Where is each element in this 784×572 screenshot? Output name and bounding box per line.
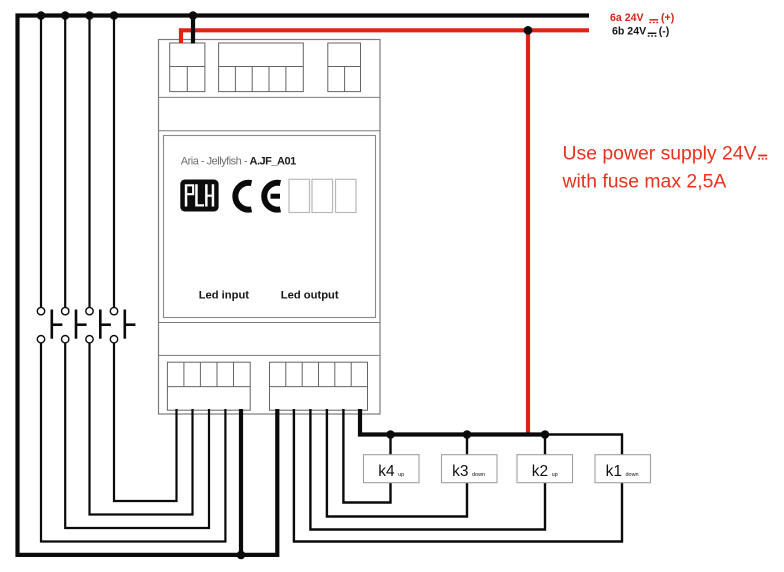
svg-text:Led output: Led output [281,290,339,302]
svg-text:(-): (-) [659,25,670,37]
svg-text:6a 24V: 6a 24V [610,12,644,24]
svg-text:Led input: Led input [199,290,250,302]
svg-text:Aria - Jellyfish - A.JF_A01: Aria - Jellyfish - A.JF_A01 [181,155,296,167]
svg-text:with fuse max 2,5A: with fuse max 2,5A [562,170,727,192]
svg-text:Use power supply 24V: Use power supply 24V [563,143,757,165]
svg-text:6b 24V: 6b 24V [612,25,646,37]
svg-text:(+): (+) [661,12,674,24]
